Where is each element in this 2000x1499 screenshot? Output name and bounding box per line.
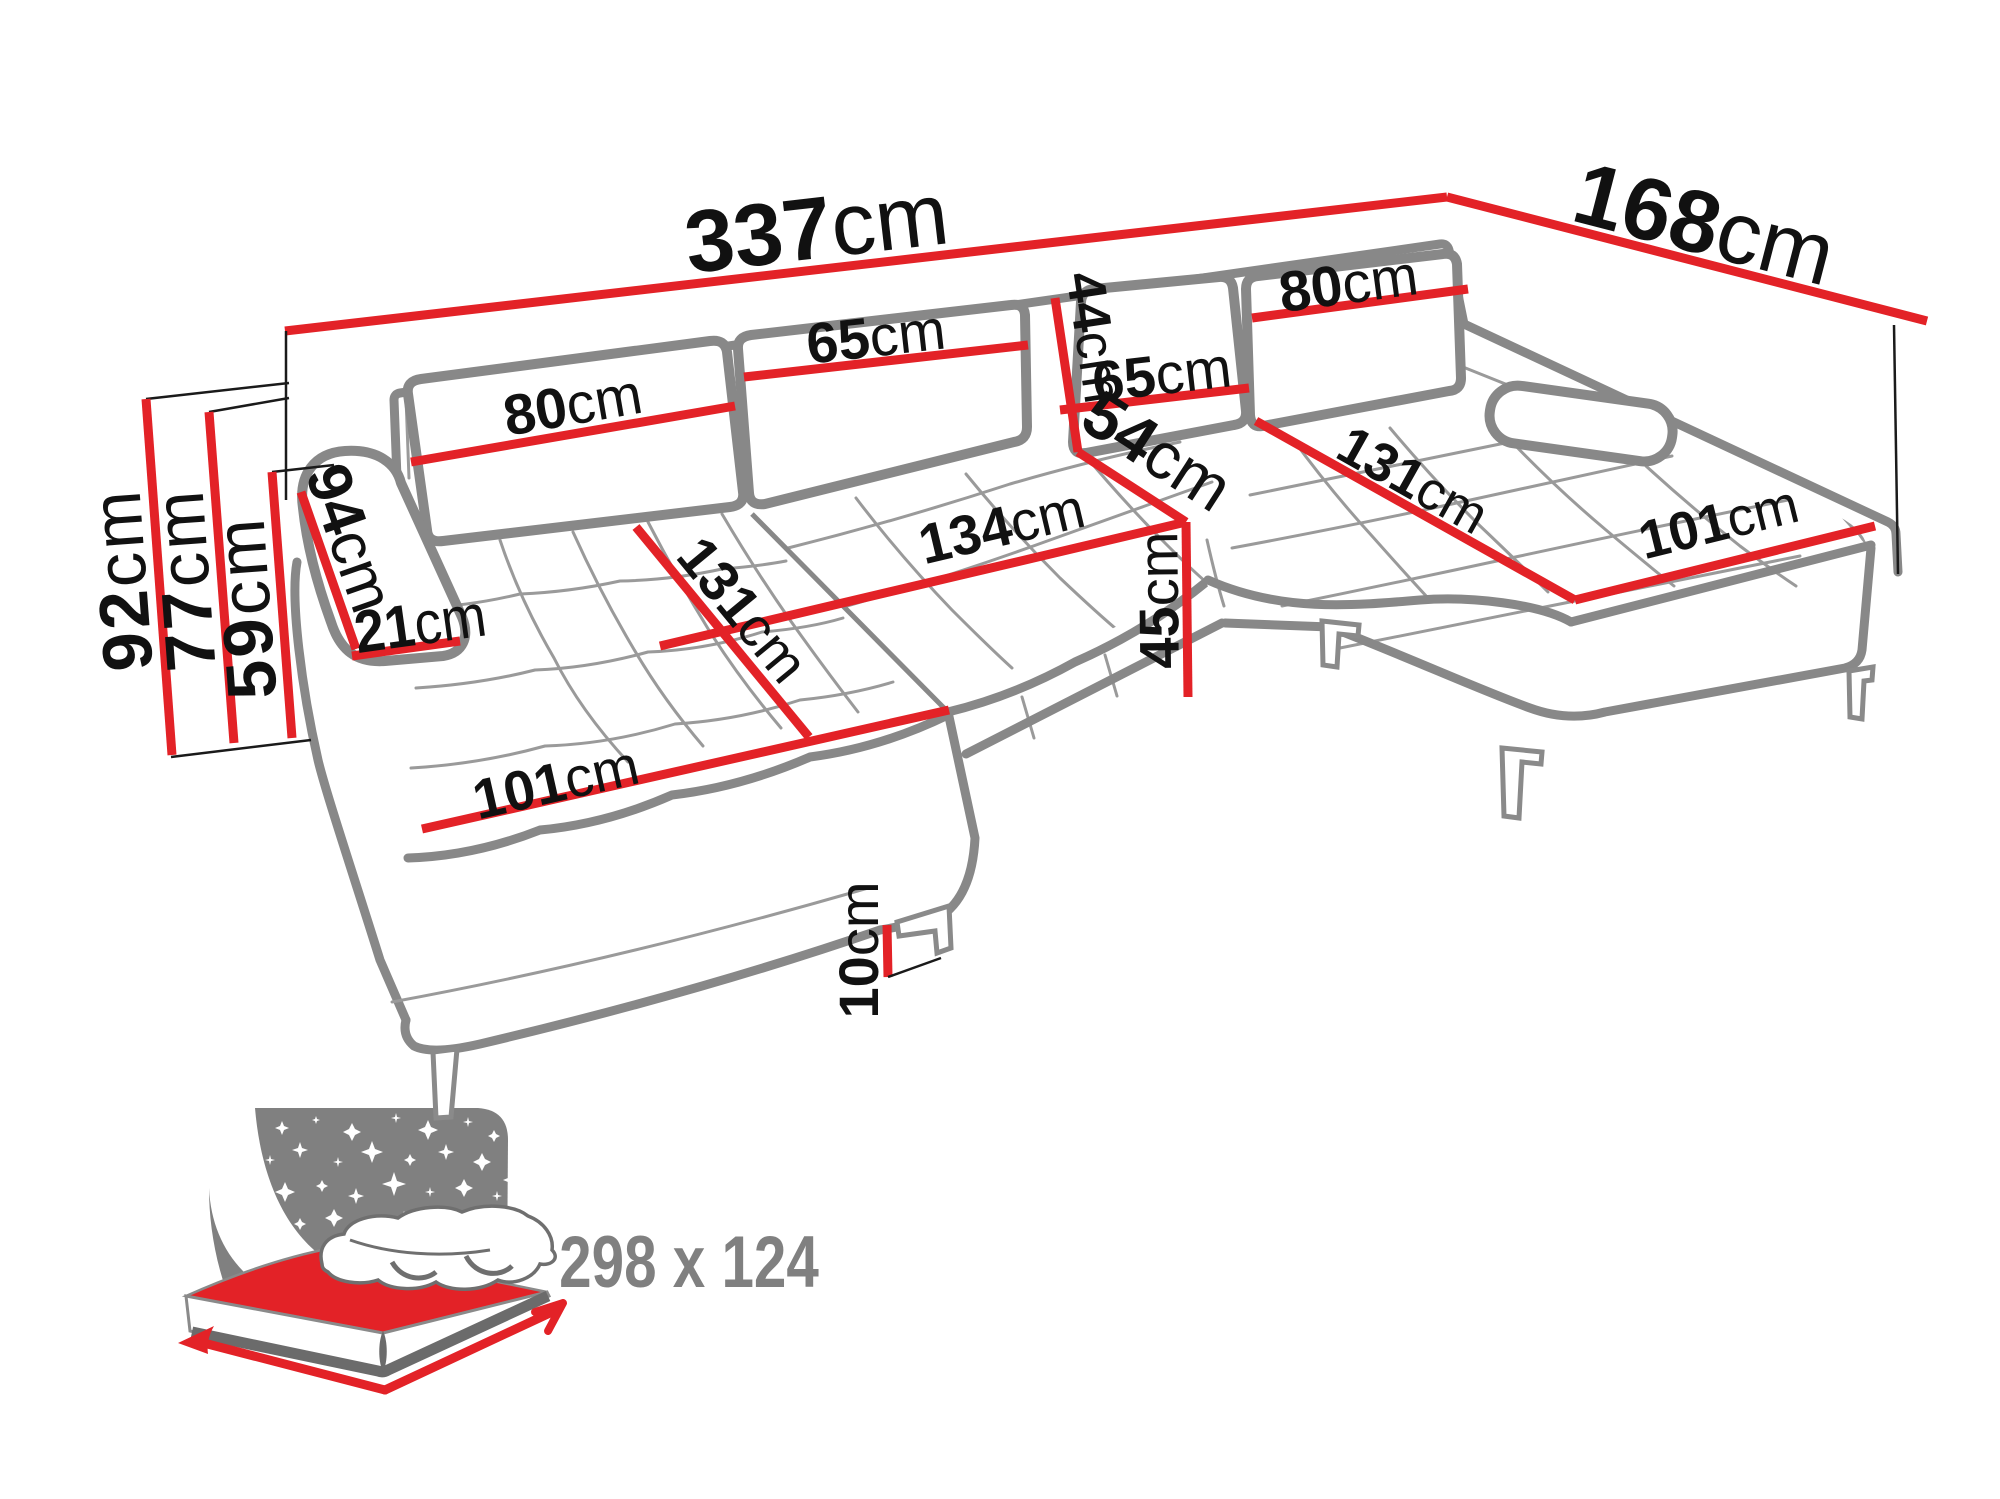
svg-text:59cm: 59cm — [200, 514, 291, 702]
svg-text:298 x 124: 298 x 124 — [559, 1222, 819, 1304]
svg-text:10cm: 10cm — [827, 882, 890, 1019]
svg-text:45cm: 45cm — [1126, 531, 1191, 669]
